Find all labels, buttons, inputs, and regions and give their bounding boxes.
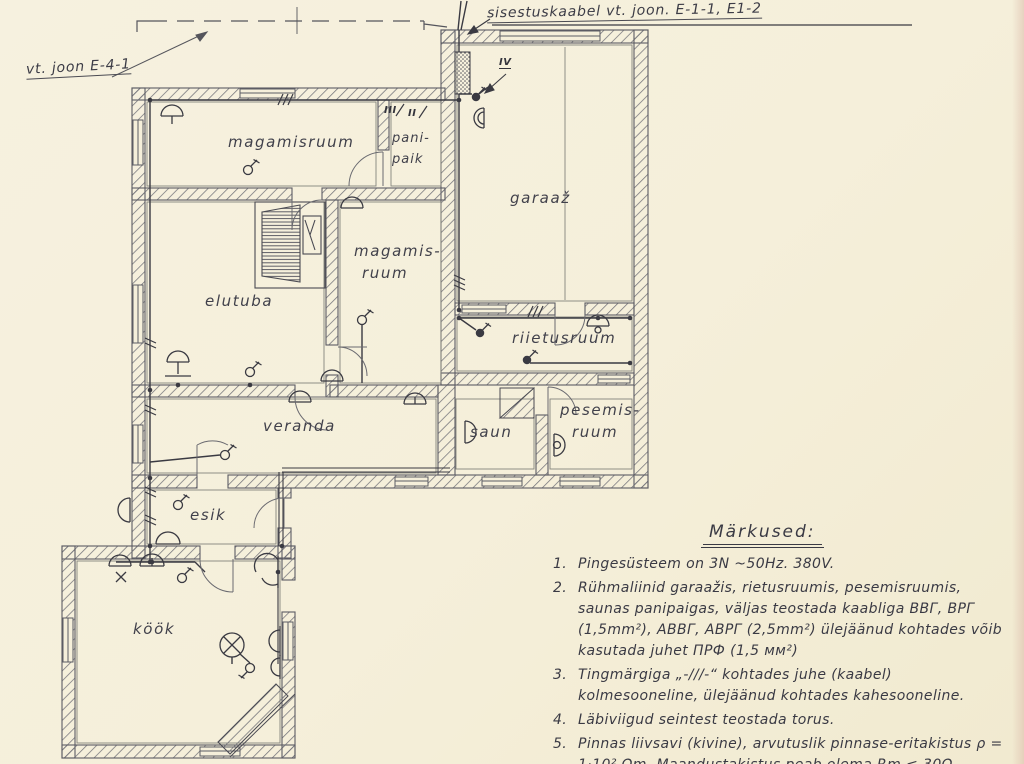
note-item-5: 5. Pinnas liivsavi (kivine), arvutuslik … <box>553 734 1009 764</box>
leader-group-iv <box>485 74 506 93</box>
room-label-magamisruum-2-line1: magamis- <box>354 242 441 260</box>
room-label-magamisruum-1: magamisruum <box>228 133 355 151</box>
notes-title: Märkused: <box>703 522 822 545</box>
room-label-pesemisruum-line2: ruum <box>572 423 618 441</box>
note-text: Läbiviigud seintest teostada torus. <box>578 710 1009 731</box>
room-label-panipaik-line1: pani- <box>392 131 430 146</box>
room-label-pesemisruum-line1: pesemis- <box>560 401 641 419</box>
note-number: 4. <box>553 710 578 731</box>
note-item-3: 3. Tingmärgiga „-///-“ kohtades juhe (ka… <box>553 665 1009 707</box>
room-label-veranda: veranda <box>263 417 336 435</box>
note-item-2: 2. Rühmaliinid garaažis, rietusruumis, p… <box>553 578 1009 662</box>
overhead-line <box>137 7 447 34</box>
note-number: 1. <box>553 554 578 575</box>
note-number: 3. <box>553 665 578 707</box>
room-label-elutuba: elutuba <box>205 292 273 310</box>
fireplace <box>255 202 325 288</box>
scan-edge-shadow <box>1012 0 1024 764</box>
room-label-magamisruum-2-line2: ruum <box>362 264 408 282</box>
room-label-garaaz: garaaž <box>510 189 571 207</box>
room-label-panipaik-line2: paik <box>392 152 423 167</box>
note-number: 2. <box>553 578 578 662</box>
room-label-kook: köök <box>133 620 175 638</box>
wire-group-label-ii: II <box>408 108 416 119</box>
note-item-1: 1. Pingesüsteem on 3N ~50Hz. 380V. <box>553 554 1009 575</box>
sauna-stove <box>500 388 534 418</box>
wire-group-label-iv: IV <box>499 57 511 69</box>
note-text: Pinnas liivsavi (kivine), arvutuslik pin… <box>578 734 1009 764</box>
notes-block: Märkused: 1. Pingesüsteem on 3N ~50Hz. 3… <box>553 522 1009 764</box>
room-label-saun: saun <box>470 423 512 441</box>
room-label-esik: esik <box>190 506 226 524</box>
wire-group-label-iii: III <box>384 105 397 116</box>
note-text: Pingesüsteem on 3N ~50Hz. 380V. <box>578 554 1009 575</box>
note-text: Tingmärgiga „-///-“ kohtades juhe (kaabe… <box>578 665 1009 707</box>
room-label-riietusruum: riietusruum <box>512 329 616 347</box>
notes-title-row: Märkused: <box>703 522 1009 545</box>
note-text: Rühmaliinid garaažis, rietusruumis, pese… <box>578 578 1009 662</box>
note-number: 5. <box>553 734 578 764</box>
scanned-floor-plan-page: sisestuskaabel vt. joon. E-1-1, E1-2 vt.… <box>0 0 1024 764</box>
note-item-4: 4. Läbiviigud seintest teostada torus. <box>553 710 1009 731</box>
